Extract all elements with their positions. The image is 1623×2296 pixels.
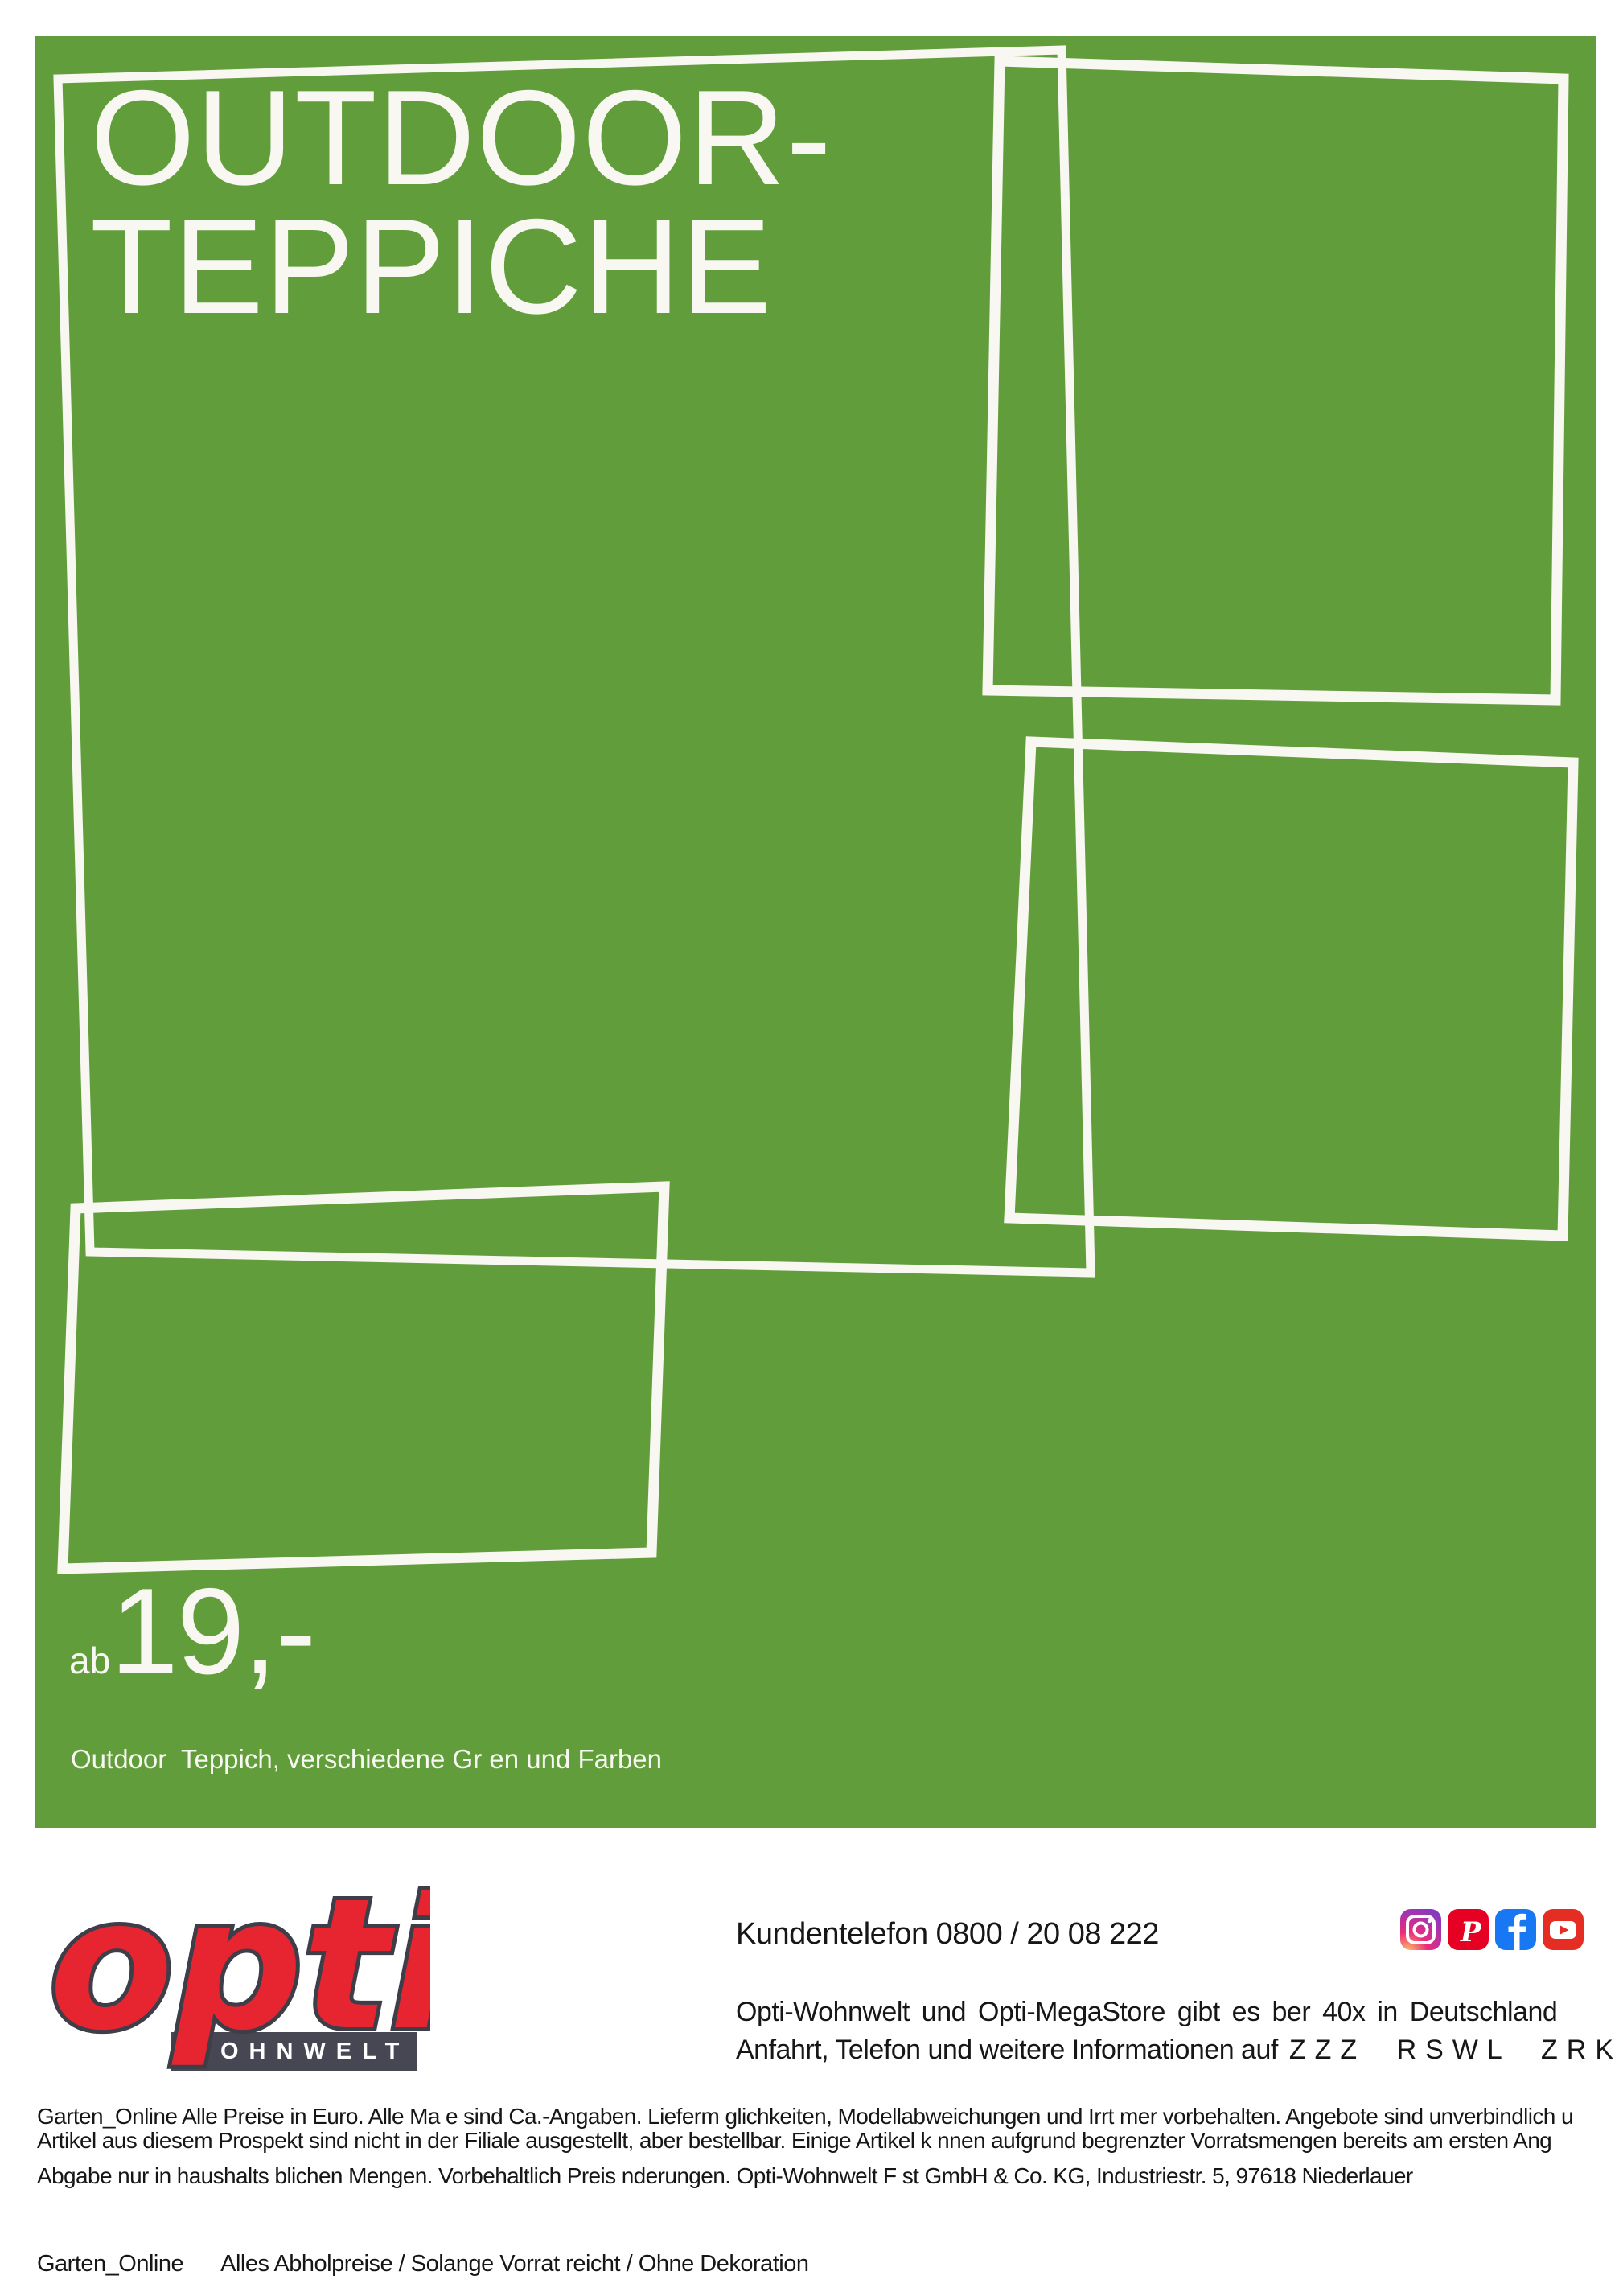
legal-text: Garten_Online Alle Preise in Euro. Alle … [37, 2105, 1623, 2188]
youtube-icon[interactable] [1542, 1908, 1584, 1951]
bottom-label: Garten_Online [37, 2251, 183, 2277]
price-value: 19,- [110, 1570, 314, 1693]
social-icons: P [1399, 1908, 1584, 1951]
legal-line-1: Garten_Online Alle Preise in Euro. Alle … [37, 2105, 1623, 2129]
price-prefix: ab [69, 1639, 110, 1682]
customer-phone: Kundentelefon 0800 / 20 08 222 [736, 1917, 1159, 1952]
store-info-line-1: Opti-Wohnwelt und Opti-MegaStore gibt es… [736, 1994, 1623, 2031]
instagram-icon[interactable] [1399, 1908, 1442, 1951]
logo-brand-text: opti [44, 1870, 430, 2079]
flyer-page: { "colors": { "green": "#619e3b", "frame… [0, 0, 1623, 2296]
bottom-conditions: Alles Abholpreise / Solange Vorrat reich… [220, 2251, 808, 2277]
store-info-line-2: Anfahrt, Telefon und weitere Information… [736, 2031, 1623, 2069]
description-line-1: Outdoor Teppich, verschiedene Gr en und … [71, 1746, 725, 1773]
logo-brand-glyphs: opti [49, 1870, 430, 2071]
pinterest-icon[interactable]: P [1447, 1908, 1489, 1951]
store-info: Opti-Wohnwelt und Opti-MegaStore gibt es… [736, 1994, 1623, 2069]
bottom-info-row: Garten_Online Alles Abholpreise / Solang… [37, 2251, 809, 2277]
store-info-url-code: ZZZ RSWL ZRKQ [1289, 2035, 1623, 2065]
store-info-line-2-text: Anfahrt, Telefon und weitere Information… [736, 2035, 1278, 2065]
svg-text:P: P [1460, 1916, 1482, 1948]
page-title: OUTDOOR-TEPPICHE [90, 74, 832, 331]
opti-logo: WOHNWELT opti [44, 1874, 430, 2084]
title-line-2: TEPPICHE [90, 191, 772, 342]
legal-line-2: Artikel aus diesem Prospekt sind nicht i… [37, 2129, 1623, 2153]
price-block: ab 19,- [69, 1570, 314, 1693]
footer: WOHNWELT opti Kundentelefon 0800 / 20 08… [0, 1828, 1623, 2296]
legal-line-3: Abgabe nur in haushalts blichen Mengen. … [37, 2164, 1623, 2188]
facebook-icon[interactable] [1494, 1908, 1537, 1951]
